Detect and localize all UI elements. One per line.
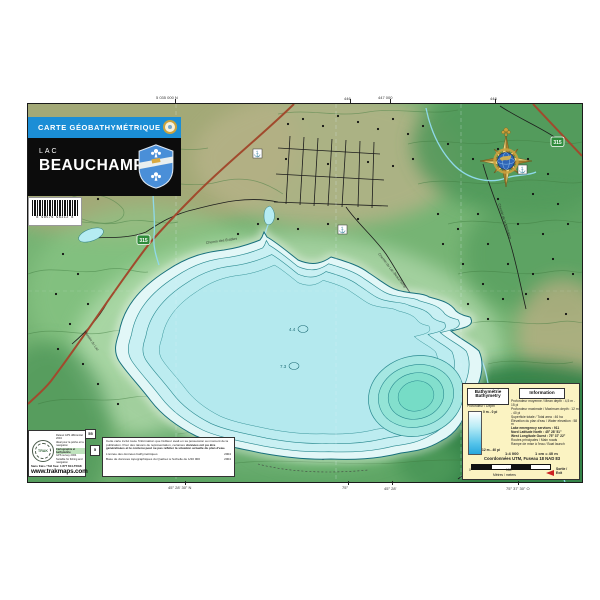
tick-mark	[518, 481, 519, 485]
barcode: 8 98576 96312 8	[28, 197, 82, 226]
tick-mark	[350, 99, 351, 103]
globe-icon	[498, 153, 515, 170]
svg-text:315: 315	[139, 238, 148, 244]
anchor-icon: ⚓	[339, 226, 346, 234]
bathy-year-value: 2004	[224, 453, 231, 457]
bathymetry-header: Bathymétrie Bathymetry	[467, 388, 509, 405]
route-marker-5: 5	[90, 445, 100, 456]
utm-datum-line: Coordonnées UTM, Fuseau 18 NAD 83	[463, 457, 581, 461]
exit-label-en: Exit	[556, 472, 562, 476]
website-url: www.trakmaps.com	[31, 468, 85, 475]
tick-mark	[495, 99, 496, 103]
anchor-icon: ⚓	[519, 166, 526, 174]
disclaimer-box: Cette carte inclut toute l'information q…	[102, 437, 235, 477]
depth-max-label: 12 m - 40 pi	[482, 449, 500, 453]
map-type-title: CARTE GÉOBATHYMÉTRIQUE	[28, 123, 161, 132]
publisher-note: Relevé GPS différentiel 2004	[56, 434, 85, 441]
topo-source-label: Base de données topographiques du Québec…	[106, 458, 204, 462]
barcode-digits: 8 98576 96312 8	[29, 216, 81, 220]
tick-mark	[175, 99, 176, 103]
information-lines: Profondeur moyenne / Mean depth : 4,5 m …	[511, 400, 579, 447]
route-marker-55: 55	[85, 429, 96, 439]
scalebar-units: Mètres / meters	[493, 474, 516, 478]
information-header: Information	[519, 388, 565, 399]
publisher-note: Idéal pour la pêche et la navigation	[56, 441, 85, 448]
tick-mark	[348, 481, 349, 485]
lake-title-block: LAC BEAUCHAMP	[28, 138, 181, 196]
edge-label-bottom: 75° 37' 30" O	[506, 486, 530, 491]
map-type-banner: CARTE GÉOBATHYMÉTRIQUE	[28, 117, 181, 138]
depth-scale-label: Profondeur / Depth	[467, 405, 495, 409]
tick-mark	[392, 481, 393, 485]
route-shield-a: 315	[137, 235, 150, 245]
tick-mark	[185, 481, 186, 485]
topo-source-value: 2004	[224, 458, 231, 462]
depth-label-1: 4.4	[289, 327, 296, 332]
exit-arrow-icon	[546, 470, 554, 476]
depth-label-2: 7.3	[280, 364, 287, 369]
seal-icon	[163, 120, 177, 134]
depth-gradient-bar	[468, 411, 482, 455]
legend-info-box: Bathymétrie Bathymetry Profondeur / Dept…	[462, 383, 580, 480]
barcode-bars	[32, 200, 78, 216]
scalebar-zero: 0	[469, 469, 471, 473]
depth-zero-label: 0 m - 0 pi	[483, 411, 497, 415]
bathy-year-label: L'année des données bathymétriques	[106, 453, 158, 457]
map-sheet: 4.4 7.3 Chemin du Lac-Beauchamp Chemin d…	[0, 0, 600, 600]
anchor-icon: ⚓	[254, 150, 261, 158]
edge-label-bottom: 45° 28' 30" N	[168, 485, 191, 490]
trak-logo-icon: TRAK	[32, 440, 54, 462]
publisher-notes: Relevé GPS différentiel 2004 Idéal pour …	[56, 434, 85, 465]
edge-label-bottom: 45° 28'	[384, 486, 396, 491]
publisher-box: TRAK Relevé GPS différentiel 2004 Idéal …	[28, 430, 86, 477]
quebec-crest-icon	[137, 142, 175, 192]
tick-mark	[390, 99, 391, 103]
route-shield-b: 315	[551, 137, 564, 147]
edge-label-bottom: 75°	[342, 485, 348, 490]
trak-logo-text: TRAK	[35, 443, 51, 459]
svg-text:315: 315	[553, 140, 562, 146]
info-line: Rampe de mise à l'eau / Boat launch	[511, 443, 579, 447]
